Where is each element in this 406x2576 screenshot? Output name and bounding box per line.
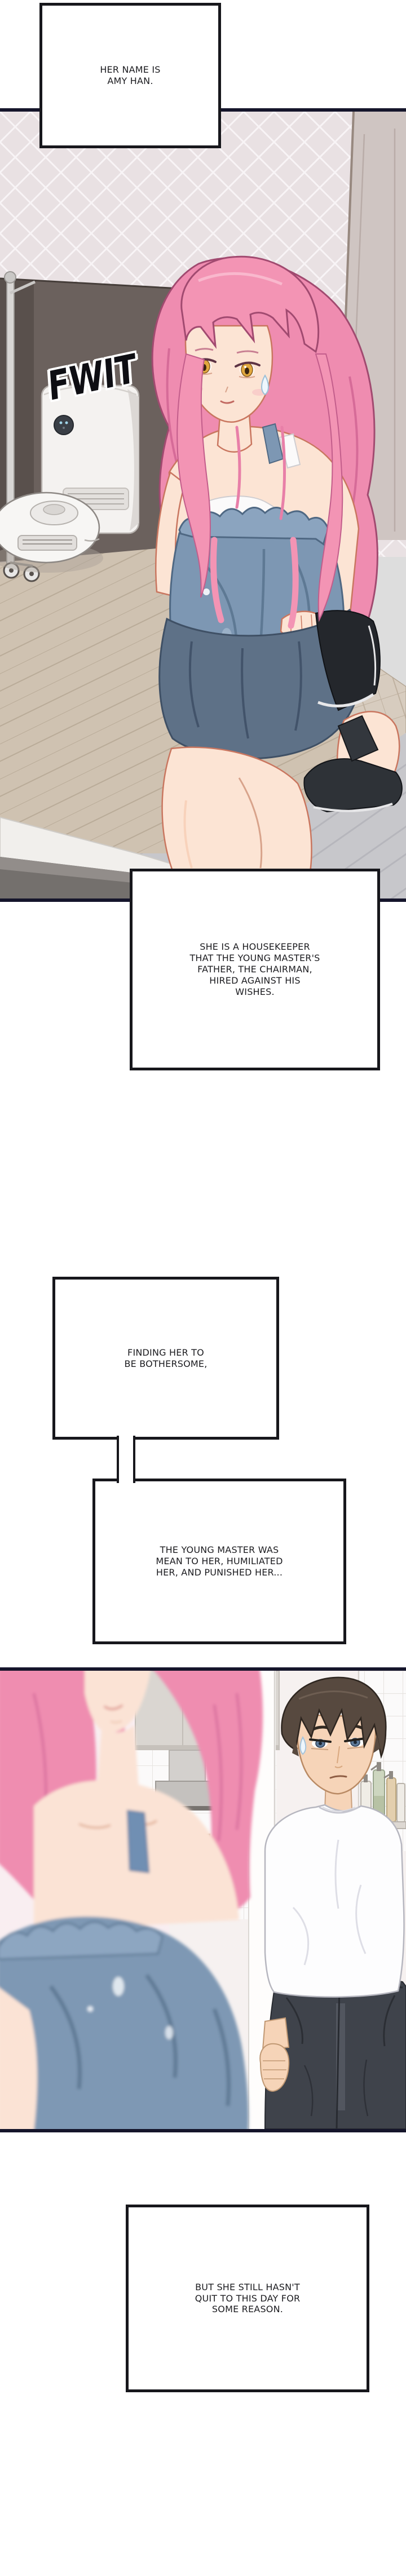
narration-box-2: SHE IS A HOUSEKEEPER THAT THE YOUNG MAST… <box>130 869 380 1070</box>
narration-line: HIRED AGAINST HIS <box>209 975 300 986</box>
narration-line: THAT THE YOUNG MASTER'S <box>189 953 320 964</box>
panel-1-art <box>0 112 406 898</box>
narration-line: SOME REASON. <box>212 2304 283 2315</box>
narration-line: THE YOUNG MASTER WAS <box>160 1544 279 1556</box>
narration-line: MEAN TO HER, HUMILIATED <box>156 1556 283 1567</box>
narration-line: HER NAME IS <box>100 64 160 76</box>
panel-kitchen <box>0 1667 406 2132</box>
narration-line: BUT SHE STILL HASN'T <box>195 2282 300 2293</box>
narration-box-4: THE YOUNG MASTER WAS MEAN TO HER, HUMILI… <box>92 1479 346 1644</box>
narration-line: AMY HAN. <box>107 76 153 87</box>
narration-box-5: BUT SHE STILL HASN'T QUIT TO THIS DAY FO… <box>126 2205 369 2392</box>
narration-line: SHE IS A HOUSEKEEPER <box>200 941 310 953</box>
narration-line: FATHER, THE CHAIRMAN, <box>197 964 312 975</box>
panel-laundry-room: FWIT <box>0 108 406 902</box>
webtoon-page: FWIT <box>0 0 406 2576</box>
narration-connector <box>117 1436 135 1483</box>
narration-line: FINDING HER TO <box>127 1347 204 1358</box>
narration-box-1: HER NAME IS AMY HAN. <box>39 3 221 148</box>
narration-line: HER, AND PUNISHED HER... <box>156 1567 283 1578</box>
narration-box-3: FINDING HER TO BE BOTHERSOME, <box>52 1277 279 1440</box>
narration-line: QUIT TO THIS DAY FOR <box>195 2293 301 2304</box>
panel-2-art <box>0 1671 406 2129</box>
amy-foreground <box>0 1671 263 2129</box>
narration-line: WISHES. <box>235 986 274 998</box>
man-tshirt <box>265 1805 404 1997</box>
narration-line: BE BOTHERSOME, <box>124 1358 207 1370</box>
